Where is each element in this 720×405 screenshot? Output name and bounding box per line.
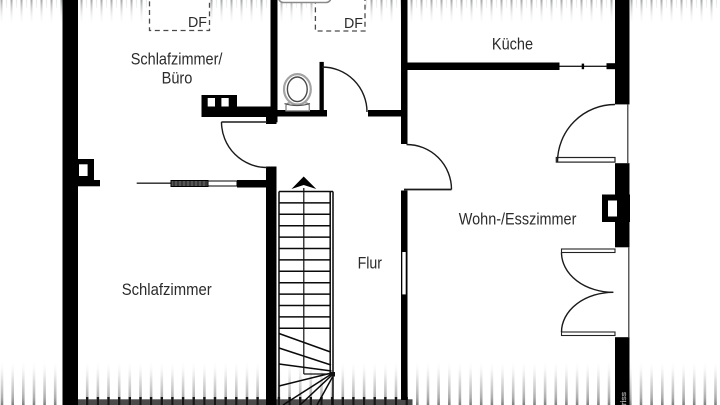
svg-text:riss: riss <box>621 391 628 405</box>
svg-text:Schlafzimmer: Schlafzimmer <box>122 280 212 299</box>
svg-text:DF: DF <box>188 14 207 31</box>
svg-text:Büro: Büro <box>162 69 193 88</box>
svg-text:Flur: Flur <box>358 254 383 273</box>
svg-text:Schlafzimmer/: Schlafzimmer/ <box>131 50 223 69</box>
svg-text:Wohn-/Esszimmer: Wohn-/Esszimmer <box>459 210 577 229</box>
svg-text:DF: DF <box>344 15 363 32</box>
svg-text:Küche: Küche <box>492 35 533 54</box>
